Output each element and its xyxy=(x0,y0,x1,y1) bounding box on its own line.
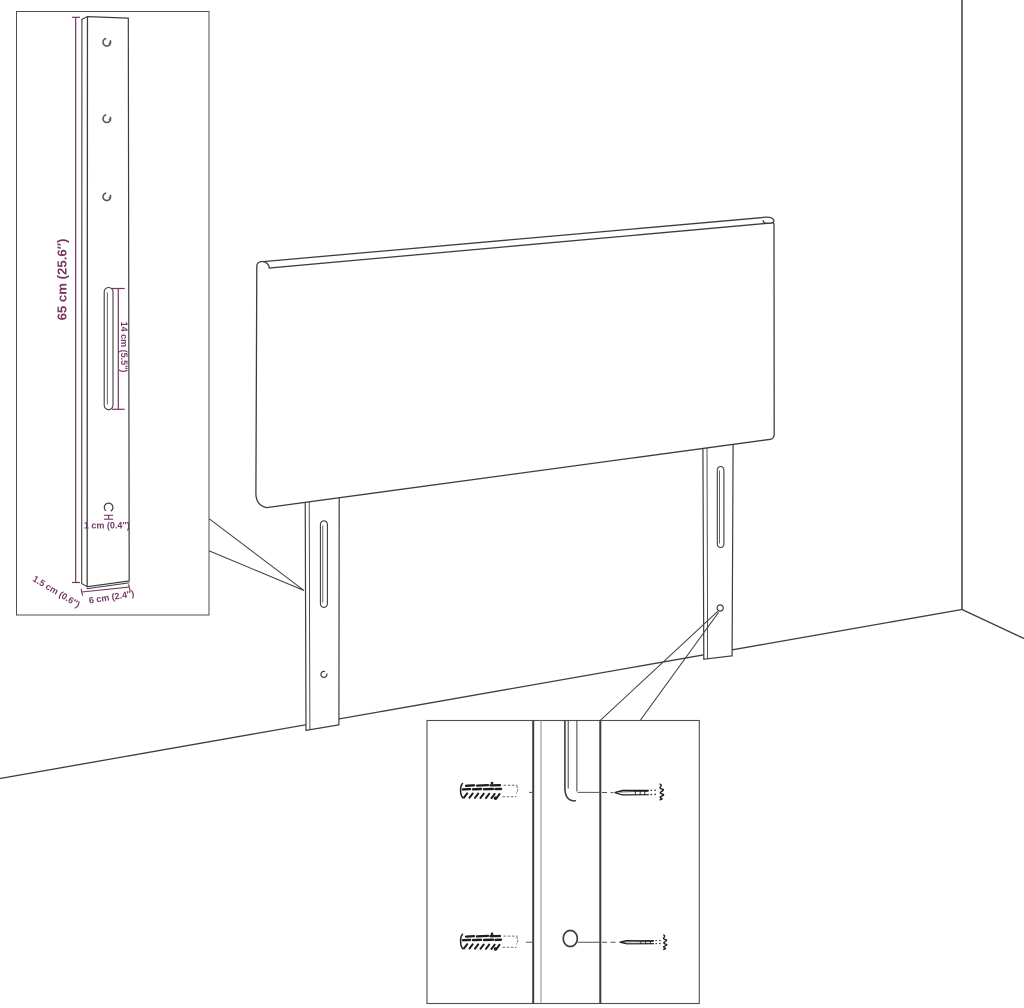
svg-text:65 cm (25.6″): 65 cm (25.6″) xyxy=(55,239,70,321)
svg-text:14 cm (5.5″): 14 cm (5.5″) xyxy=(119,322,129,373)
svg-text:1 cm (0.4″): 1 cm (0.4″) xyxy=(84,521,130,531)
